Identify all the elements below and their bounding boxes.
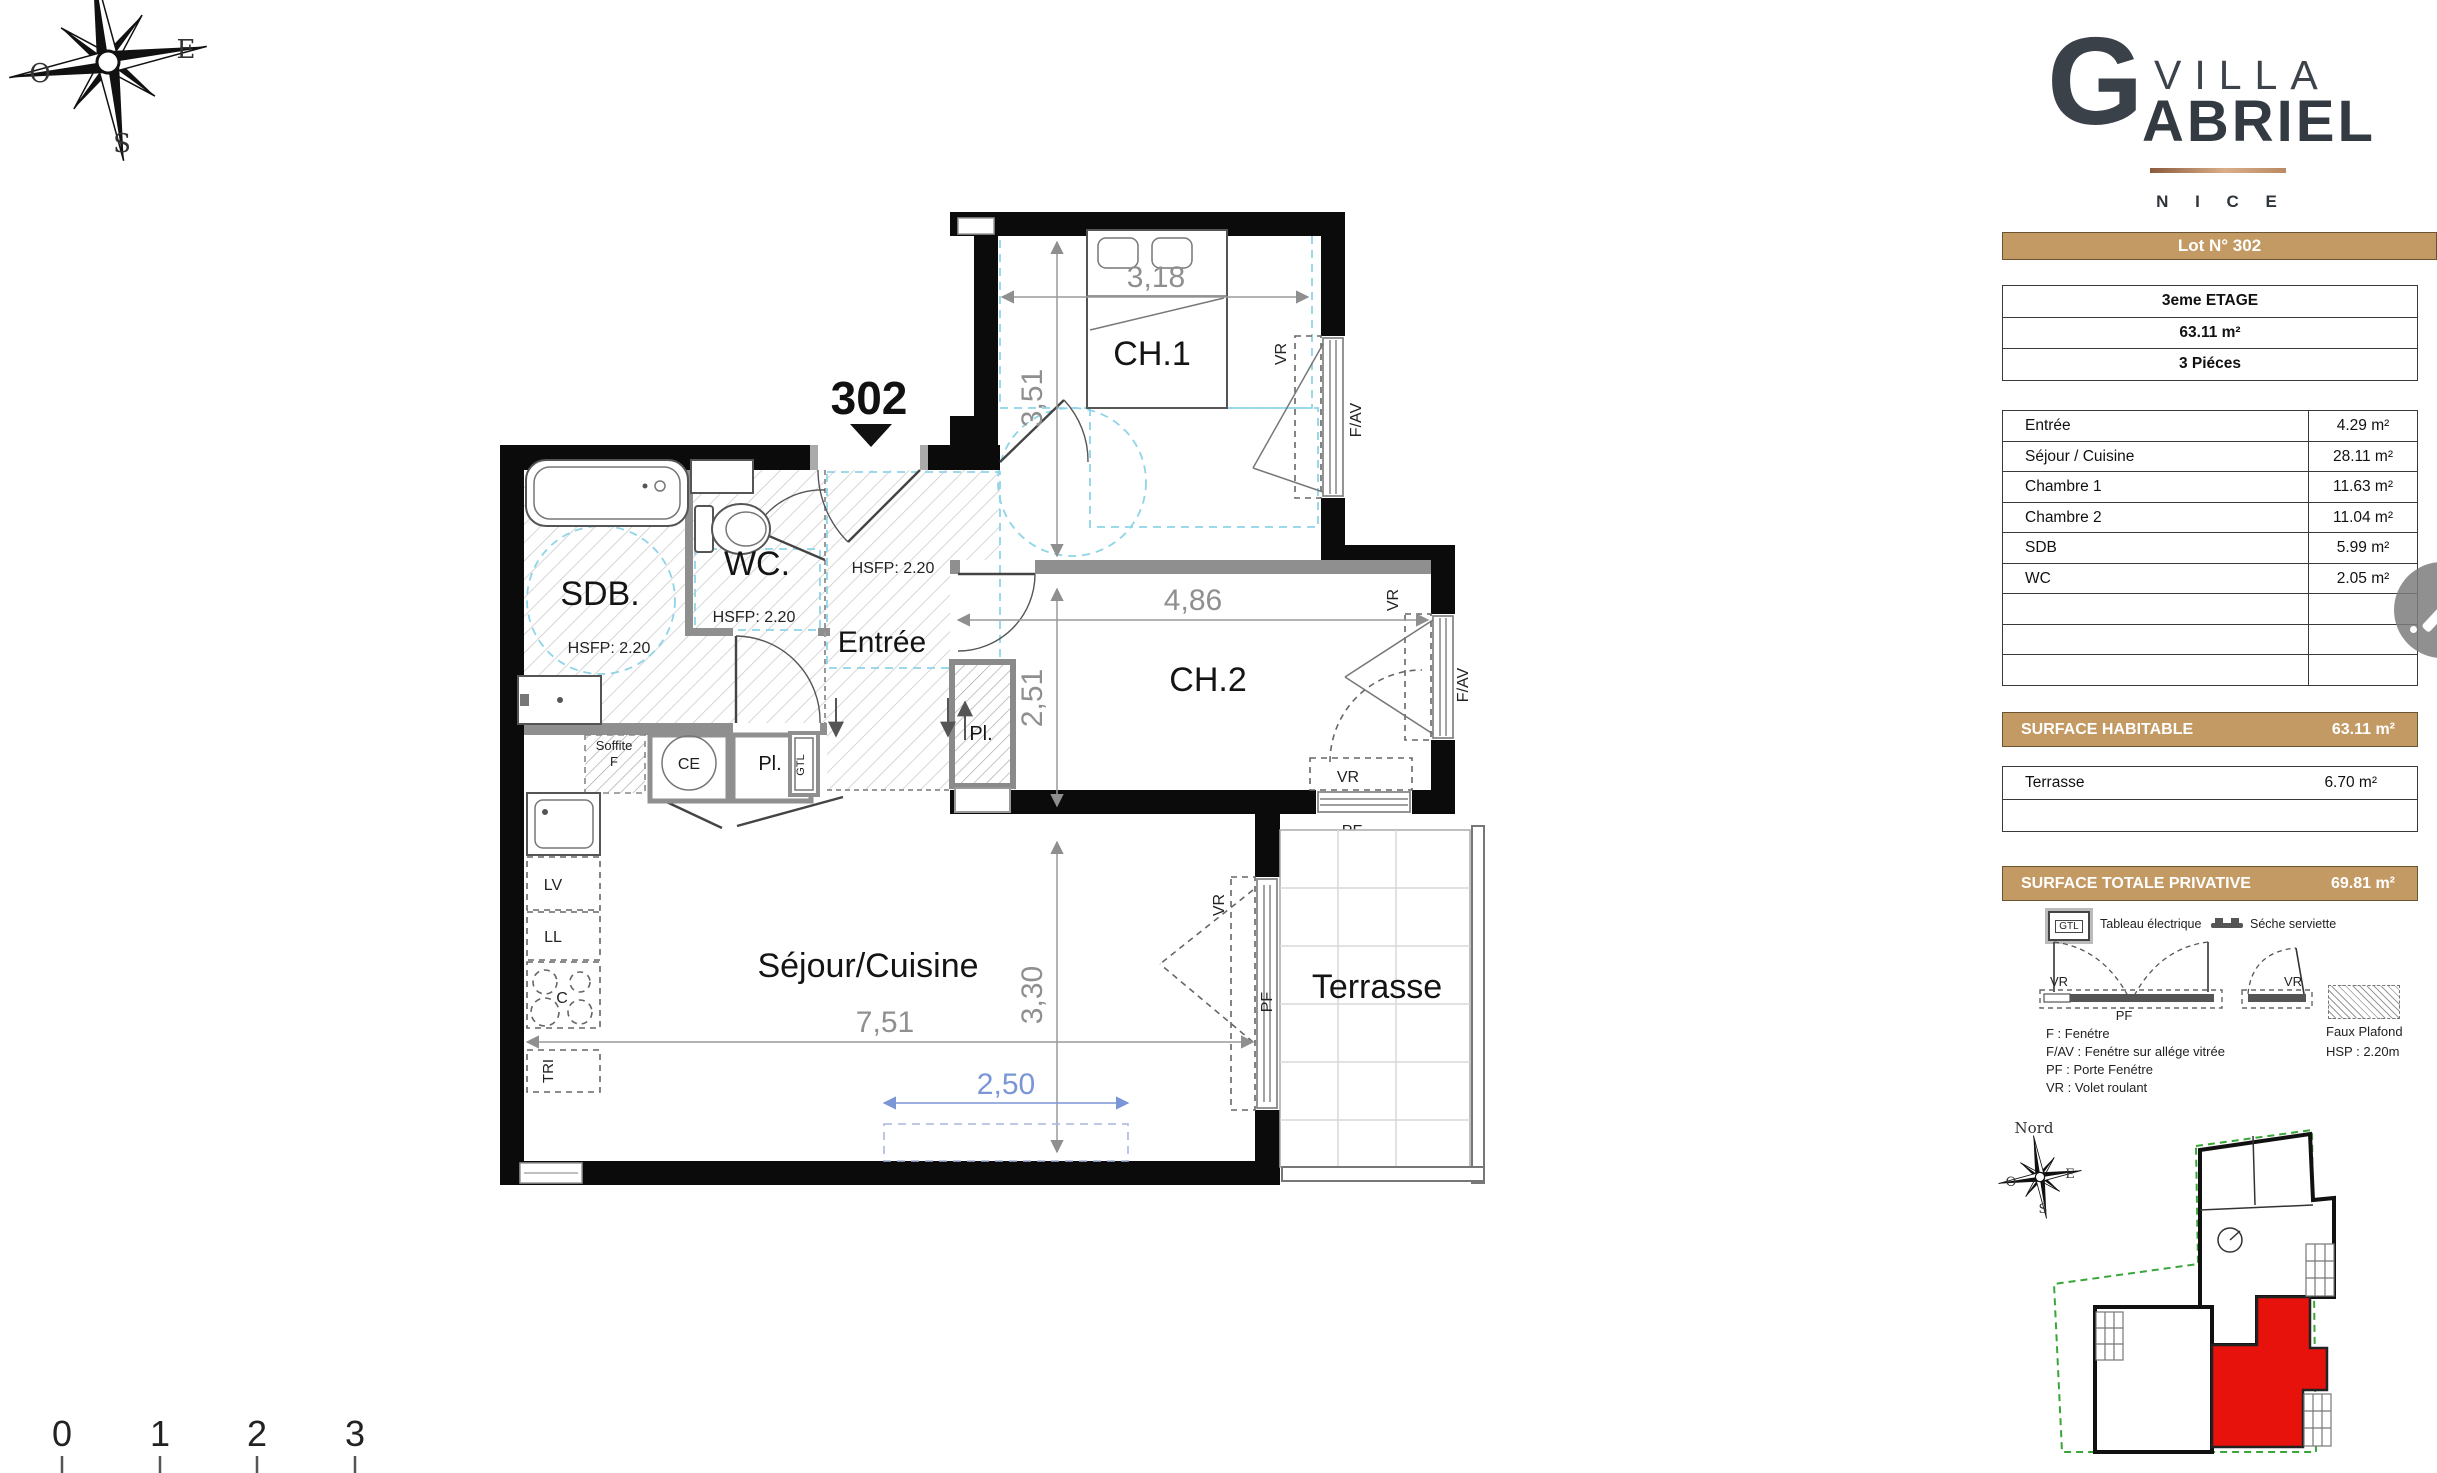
legend-window-diagrams: VR PF VR: [2036, 938, 2316, 1024]
hsfp-sdb: HSFP: 2.20: [568, 640, 651, 657]
room-label: SDB: [2003, 533, 2308, 563]
logo-city: N I C E: [2142, 192, 2302, 212]
room-area: 5.99 m²: [2308, 533, 2417, 563]
abbr-fenetre: F : Fenétre: [2046, 1026, 2110, 1041]
logo-divider: [2150, 168, 2286, 173]
label-ch2: CH.2: [1169, 661, 1246, 699]
room-label: Chambre 1: [2003, 472, 2308, 502]
sejour-pf-label: PF: [1259, 992, 1276, 1013]
room-area-table: Entrée 4.29 m² Séjour / Cuisine 28.11 m²…: [2002, 410, 2418, 686]
legend-vr2-label: VR: [2284, 974, 2302, 989]
dim-sejour-width: 7,51: [856, 1006, 914, 1039]
dim-ch1-height: 3,51: [1016, 369, 1049, 427]
compass-south-label: S: [113, 129, 131, 159]
compass-east-label: E: [177, 35, 196, 65]
label-ch1: CH.1: [1113, 335, 1190, 373]
faux-plafond-label: Faux Plafond: [2326, 1024, 2403, 1039]
table-row: Terrasse 6.70 m²: [2003, 767, 2417, 800]
ch2-fav-label: F/AV: [1455, 667, 1472, 702]
table-row: Chambre 1 11.63 m²: [2003, 472, 2417, 503]
room-area: 28.11 m²: [2308, 442, 2417, 472]
surface-totale-label: SURFACE TOTALE PRIVATIVE: [2003, 867, 2251, 900]
ch1-vr-label: VR: [1273, 343, 1290, 365]
faux-plafond-swatch: [2328, 985, 2400, 1019]
label-soffite: Soffite: [596, 738, 633, 753]
label-sejour: Séjour/Cuisine: [757, 947, 978, 985]
ch2-pf-vr-label: VR: [1337, 769, 1359, 786]
hsfp-wc: HSFP: 2.20: [713, 609, 796, 626]
room-area: 4.29 m²: [2308, 411, 2417, 441]
dim-bay-width: 2,50: [977, 1068, 1035, 1101]
label-pl-ch2: Pl.: [969, 723, 992, 745]
info-row-area: 63.11 m²: [2003, 318, 2417, 350]
surface-habitable-banner: SURFACE HABITABLE 63.11 m²: [2002, 712, 2418, 747]
unit-number: 302: [831, 372, 908, 424]
scale-0: 0: [52, 1413, 72, 1454]
table-row: Chambre 2 11.04 m²: [2003, 503, 2417, 534]
scale-2: 2: [247, 1413, 267, 1454]
compass-rose: E O S: [0, 0, 222, 176]
abbr-porte-fenetre: PF : Porte Fenétre: [2046, 1062, 2153, 1077]
label-lv: LV: [544, 877, 563, 894]
terrasse-table: Terrasse 6.70 m²: [2002, 766, 2418, 832]
gtl-legend-icon: GTL: [2048, 911, 2090, 941]
logo-line2: ABRIEL: [2142, 88, 2376, 155]
legend-seche-serviette: Séche serviette: [2250, 917, 2336, 931]
table-row: Séjour / Cuisine 28.11 m²: [2003, 442, 2417, 473]
surface-habitable-value: 63.11 m²: [2332, 713, 2395, 746]
label-ll: LL: [544, 929, 562, 946]
info-panel: G VILLA ABRIEL N I C E Lot N° 302 3eme E…: [1992, 0, 2437, 1473]
surface-totale-banner: SURFACE TOTALE PRIVATIVE 69.81 m²: [2002, 866, 2418, 901]
abbr-fav: F/AV : Fenétre sur allége vitrée: [2046, 1044, 2225, 1059]
room-area: 11.63 m²: [2308, 472, 2417, 502]
room-label: WC: [2003, 564, 2308, 594]
towel-rail-icon: [2210, 915, 2244, 933]
table-row-empty: [2003, 800, 2417, 832]
table-row: WC 2.05 m²: [2003, 564, 2417, 595]
dim-ch2-width: 4,86: [1164, 584, 1222, 617]
floor-plan: VR F/AV VR F/AV VR PF VR PF: [500, 212, 1484, 1185]
hsfp-entree: HSFP: 2.20: [852, 560, 935, 577]
compass-west-label: O: [29, 59, 50, 89]
sejour-vr-label: VR: [1211, 894, 1228, 916]
legend-tableau-electrique: Tableau électrique: [2100, 917, 2201, 931]
scale-1: 1: [150, 1413, 170, 1454]
label-pl-sejour: Pl.: [758, 753, 781, 775]
terrasse-value: 6.70 m²: [2324, 767, 2377, 799]
terrasse-label: Terrasse: [2003, 774, 2084, 791]
label-c: C: [556, 990, 568, 1007]
faux-plafond-hsp: HSP : 2.20m: [2326, 1044, 2399, 1059]
lot-banner: Lot N° 302: [2002, 232, 2437, 260]
table-row-empty: [2003, 594, 2417, 625]
dim-ch1-width: 3,18: [1127, 261, 1185, 294]
dim-ch2-height: 2,51: [1016, 669, 1049, 727]
abbr-volet-roulant: VR : Volet roulant: [2046, 1080, 2147, 1095]
table-row: Entrée 4.29 m²: [2003, 411, 2417, 442]
table-row-empty: [2003, 625, 2417, 656]
unit-info-table: 3eme ETAGE 63.11 m² 3 Piéces: [2002, 285, 2418, 381]
dim-sejour-height: 3,30: [1016, 966, 1049, 1024]
info-row-pieces: 3 Piéces: [2003, 349, 2417, 380]
room-label: Séjour / Cuisine: [2003, 442, 2308, 472]
surface-habitable-label: SURFACE HABITABLE: [2003, 713, 2193, 746]
floorplan-sheet: { "sidebar": { "logo": {"initial": "G", …: [0, 0, 2437, 1473]
scale-3: 3: [345, 1413, 365, 1454]
room-area: 11.04 m²: [2308, 503, 2417, 533]
gtl-legend-text: GTL: [2055, 920, 2082, 933]
table-row-empty: [2003, 655, 2417, 685]
label-ce: CE: [678, 756, 700, 773]
room-label: Entrée: [2003, 411, 2308, 441]
legend-vr1-label: VR: [2050, 974, 2068, 989]
scale-bar: 0 1 2 3: [52, 1413, 365, 1473]
pencil-icon: [2421, 585, 2437, 633]
table-row: SDB 5.99 m²: [2003, 533, 2417, 564]
info-row-floor: 3eme ETAGE: [2003, 286, 2417, 318]
label-gtl: GTL: [795, 754, 807, 775]
label-sdb: SDB.: [560, 575, 639, 613]
ch2-vr-label: VR: [1385, 589, 1402, 611]
surface-totale-value: 69.81 m²: [2331, 867, 2395, 900]
label-tri: TRI: [540, 1059, 557, 1083]
label-terrasse: Terrasse: [1312, 968, 1442, 1006]
ch1-fav-label: F/AV: [1348, 402, 1365, 437]
label-soffite-f: F: [610, 754, 618, 769]
logo-initial: G: [2047, 20, 2143, 144]
room-label: Chambre 2: [2003, 503, 2308, 533]
legend-pf1-label: PF: [2116, 1008, 2133, 1023]
label-entree: Entrée: [838, 626, 926, 659]
label-wc: WC.: [724, 545, 790, 583]
unit-marker: 302: [831, 372, 908, 447]
